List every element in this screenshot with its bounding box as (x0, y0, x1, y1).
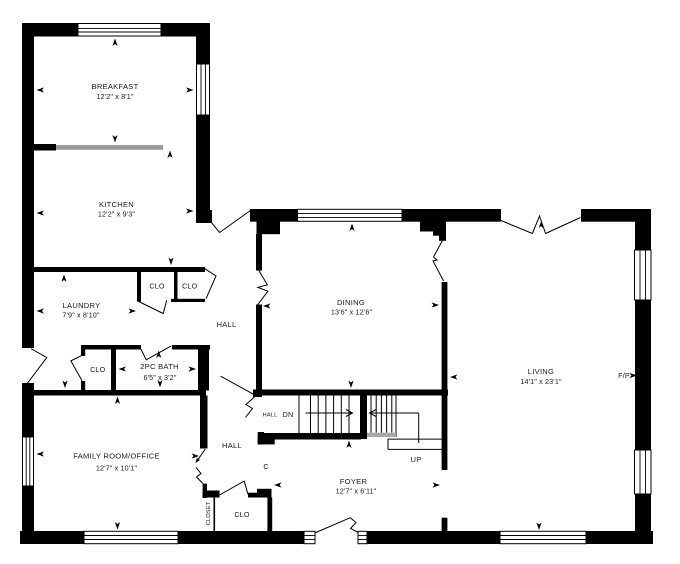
svg-text:CLO: CLO (90, 365, 105, 374)
svg-text:6'5" x 3'2": 6'5" x 3'2" (143, 373, 176, 382)
svg-text:12'2" x 9'3": 12'2" x 9'3" (98, 210, 136, 219)
svg-text:HALL: HALL (217, 320, 237, 329)
svg-text:LAUNDRY: LAUNDRY (63, 301, 101, 310)
svg-text:CLO: CLO (182, 282, 197, 291)
svg-text:HALL: HALL (263, 413, 279, 419)
svg-text:14'1" x 23'1": 14'1" x 23'1" (520, 377, 562, 386)
svg-text:HALL: HALL (222, 441, 242, 450)
svg-text:13'6" x 12'6": 13'6" x 12'6" (331, 308, 373, 317)
svg-text:2PC BATH: 2PC BATH (140, 362, 179, 371)
svg-text:FAMILY ROOM/OFFICE: FAMILY ROOM/OFFICE (73, 452, 160, 461)
svg-text:CLO: CLO (234, 510, 249, 519)
svg-text:12'7" x 6'11": 12'7" x 6'11" (336, 487, 377, 496)
svg-text:LIVING: LIVING (528, 367, 554, 376)
svg-text:UP: UP (410, 455, 421, 464)
svg-text:12'7" x 10'1": 12'7" x 10'1" (96, 464, 138, 473)
svg-text:FOYER: FOYER (340, 477, 368, 486)
svg-text:CLOSET: CLOSET (206, 501, 212, 525)
svg-text:CLO: CLO (149, 282, 164, 291)
svg-text:DINING: DINING (337, 298, 365, 307)
svg-text:F/P: F/P (618, 371, 630, 380)
svg-text:12'2" x 8'1": 12'2" x 8'1" (96, 92, 134, 101)
svg-text:7'9" x 8'10": 7'9" x 8'10" (62, 311, 100, 320)
svg-text:DN: DN (283, 410, 294, 419)
svg-text:C: C (263, 462, 268, 471)
svg-text:KITCHEN: KITCHEN (99, 200, 134, 209)
svg-text:BREAKFAST: BREAKFAST (92, 82, 139, 91)
